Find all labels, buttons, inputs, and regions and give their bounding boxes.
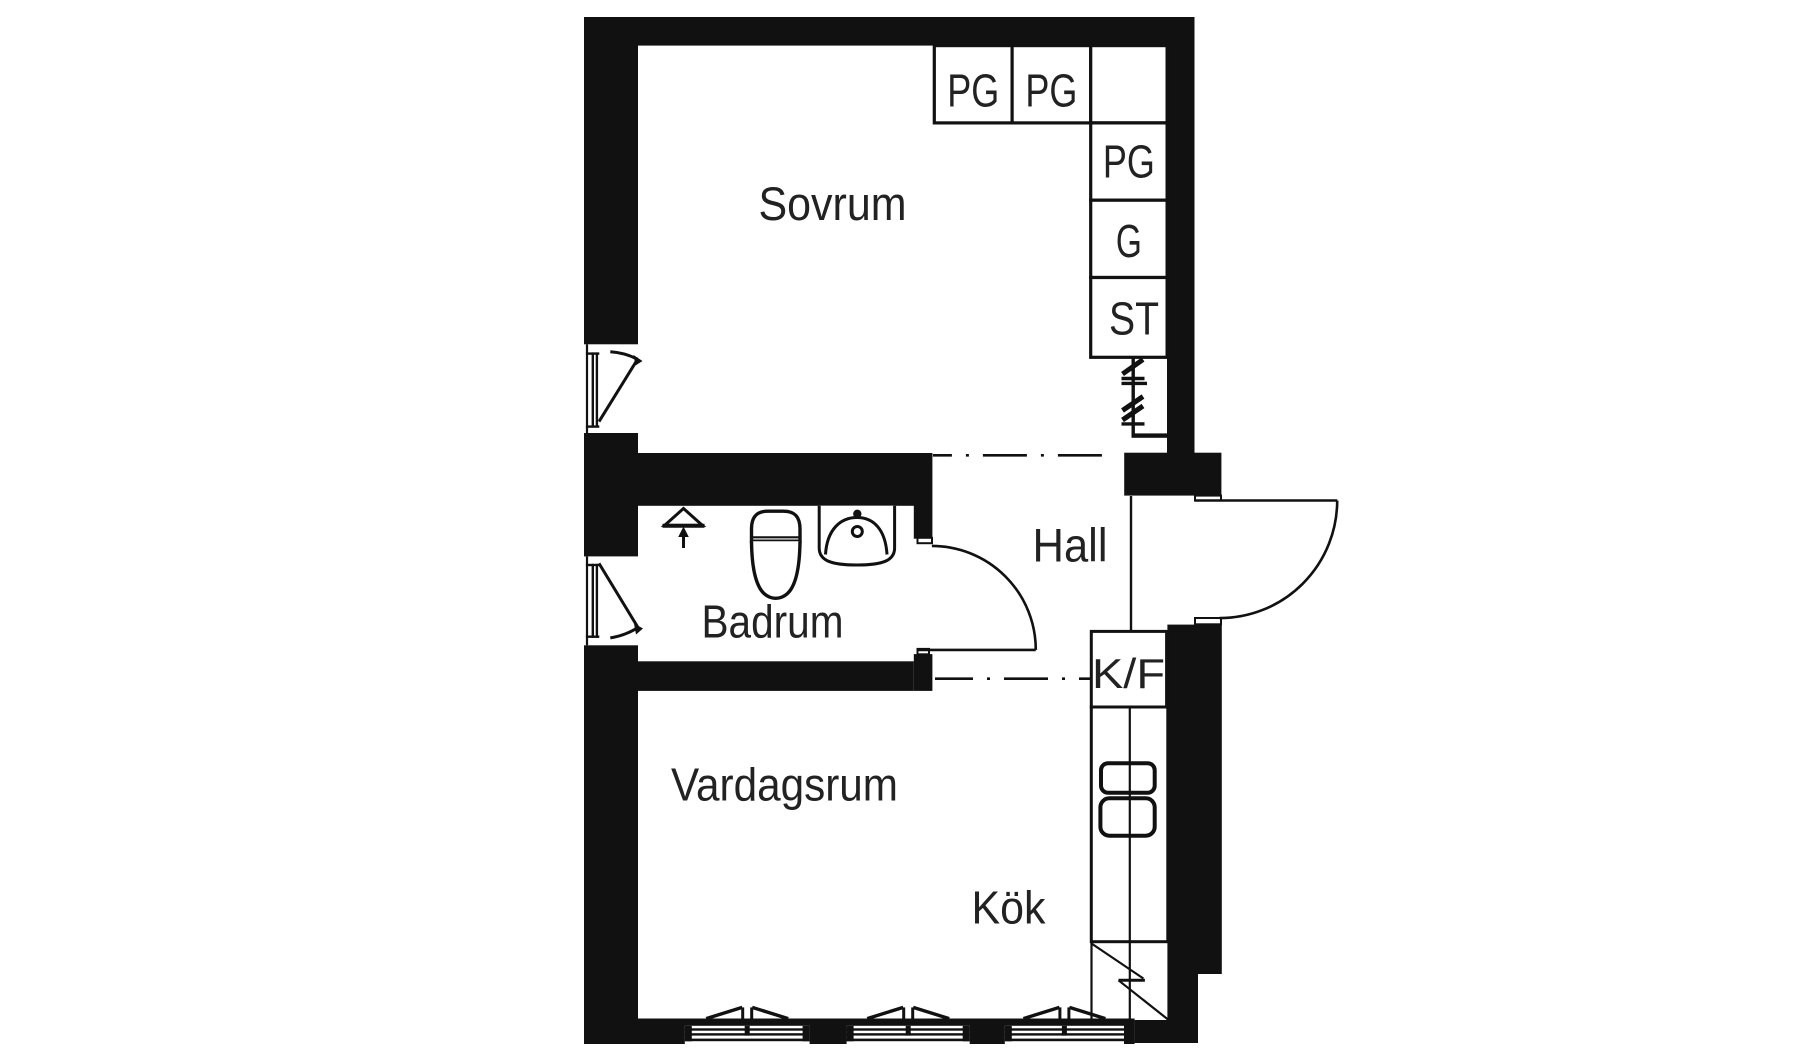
svg-text:Kök: Kök xyxy=(972,882,1047,934)
svg-text:K/F: K/F xyxy=(1092,650,1165,697)
svg-text:G: G xyxy=(1116,215,1142,267)
svg-text:ST: ST xyxy=(1109,293,1159,345)
svg-text:PG: PG xyxy=(1025,64,1077,116)
svg-text:Badrum: Badrum xyxy=(702,596,844,648)
svg-text:PG: PG xyxy=(1103,136,1155,188)
svg-text:PG: PG xyxy=(947,64,999,116)
svg-text:Hall: Hall xyxy=(1033,519,1108,572)
svg-text:Sovrum: Sovrum xyxy=(759,177,907,230)
svg-text:Vardagsrum: Vardagsrum xyxy=(671,759,898,811)
